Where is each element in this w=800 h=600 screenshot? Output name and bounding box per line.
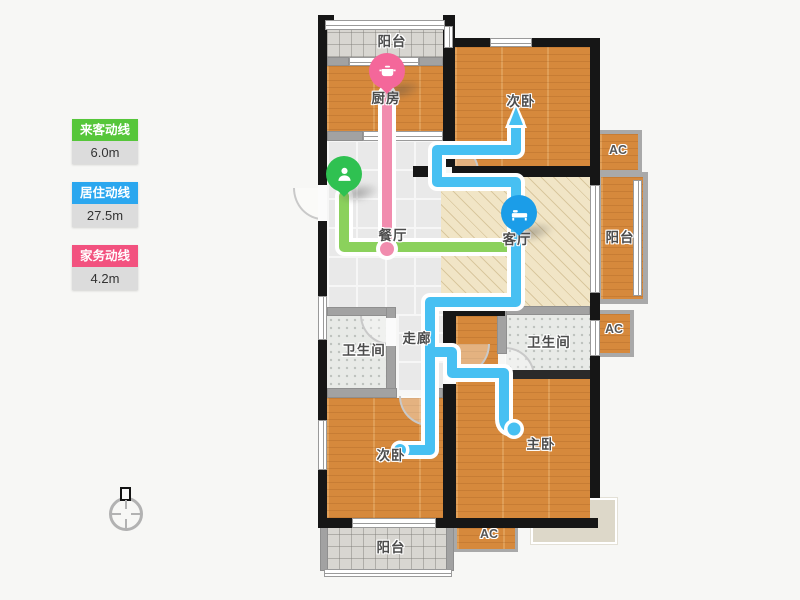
bedroom-bottom-top-wall-stub — [425, 388, 443, 398]
entry-pin — [326, 156, 384, 210]
master-door — [443, 358, 456, 384]
legend-item-visitor[interactable]: 来客动线 6.0m — [72, 119, 138, 164]
pot-pin-icon — [379, 63, 396, 80]
outer-wall-right-upper — [590, 38, 600, 175]
bath-right-window — [590, 320, 600, 356]
bedroom-top-window — [490, 38, 532, 47]
wall-living-south — [443, 306, 505, 316]
legend-label-chores: 家务动线 — [72, 245, 138, 267]
legend-value-resident: 27.5m — [72, 204, 138, 227]
kitchen-dining-wall — [327, 131, 363, 141]
living-balcony-window — [590, 185, 600, 293]
legend-item-resident[interactable]: 居住动线 27.5m — [72, 182, 138, 227]
kitchen-balcony-wall-left — [327, 57, 349, 66]
room-master-floor — [456, 378, 590, 518]
room-label-ac-mid: AC — [605, 322, 623, 336]
bath-right-top-wall — [505, 306, 590, 315]
legend-value-visitor: 6.0m — [72, 141, 138, 164]
wall-living-top — [452, 166, 598, 177]
bath-left-top-wall — [327, 307, 387, 316]
room-label-bath-left: 卫生间 — [342, 339, 386, 359]
room-label-ac-bottom: AC — [480, 527, 498, 541]
bottom-wall-right — [443, 518, 598, 528]
legend-label-resident: 居住动线 — [72, 182, 138, 204]
balcony-top-rail — [325, 20, 445, 30]
room-label-ac-top: AC — [609, 143, 627, 157]
room-label-bath-right: 卫生间 — [527, 331, 571, 351]
room-label-balcony-right: 阳台 — [606, 226, 635, 246]
living-pin — [501, 195, 559, 249]
person-pin-icon — [336, 166, 353, 183]
room-label-master: 主卧 — [527, 433, 556, 453]
legend-value-chores: 4.2m — [72, 267, 138, 290]
floorplan-canvas: 来客动线 6.0m 居住动线 27.5m 家务动线 4.2m — [0, 0, 800, 600]
kitchen-pin — [369, 53, 427, 107]
room-label-dining: 餐厅 — [379, 224, 408, 244]
window-left-2 — [318, 420, 327, 470]
room-label-bedroom-top: 次卧 — [507, 90, 536, 110]
balcony-bottom-right-rail — [446, 527, 454, 571]
bath-left-door — [386, 318, 396, 346]
legend-label-visitor: 来客动线 — [72, 119, 138, 141]
bedroom-top-wall-b — [532, 38, 598, 47]
room-label-balcony-top: 阳台 — [378, 30, 407, 50]
window-top-mid — [444, 26, 453, 48]
room-label-balcony-bottom: 阳台 — [377, 536, 406, 556]
legend-item-chores[interactable]: 家务动线 4.2m — [72, 245, 138, 290]
outer-wall-left-bottom — [318, 221, 327, 527]
window-left-1 — [318, 296, 327, 340]
balcony-bottom-rail — [324, 569, 452, 577]
bath-right-bottom-wall — [497, 370, 598, 379]
balcony-bottom-left-rail — [320, 527, 328, 571]
bedroom-bottom-top-wall — [327, 388, 397, 398]
compass-north-indicator — [120, 487, 131, 501]
bedroom-top-wall-a — [448, 38, 490, 47]
room-label-bedroom-bottom: 次卧 — [377, 444, 406, 464]
room-label-corridor: 走廊 — [403, 327, 432, 347]
kitchen-dining-door — [363, 131, 443, 141]
wall-corridor-master — [443, 316, 456, 518]
bedroom-bottom-balcony-slider — [352, 518, 436, 528]
bed-pin-icon — [511, 205, 528, 222]
wall-living-top-stub — [413, 166, 438, 177]
